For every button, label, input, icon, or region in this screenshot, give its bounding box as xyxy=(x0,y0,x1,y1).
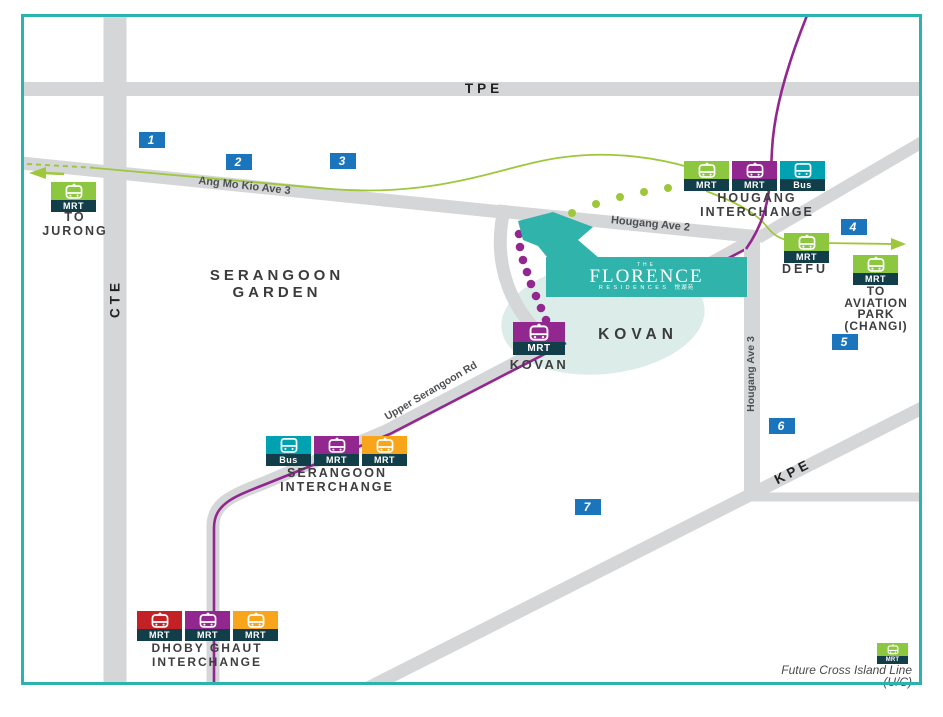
future-cil-line1: Future Cross Island Line xyxy=(710,665,912,677)
train-icon xyxy=(784,233,829,251)
roads xyxy=(21,14,925,689)
train-icon xyxy=(853,255,898,273)
marker-7: 7 xyxy=(575,499,601,515)
train-icon xyxy=(362,436,407,454)
mrt-icon-green-future-cil: MRT xyxy=(877,643,908,664)
bus-icon-teal-serangoon: Bus xyxy=(266,436,311,466)
dhoby-line1: DHOBY GHAUT xyxy=(122,642,292,656)
serangoon-line1: SERANGOON xyxy=(252,467,422,481)
logo-name: FLORENCE xyxy=(589,268,703,285)
hougang-line2: INTERCHANGE xyxy=(672,206,842,220)
logo-chinese-text: 悦湖苑 xyxy=(675,285,695,291)
mrt-badge: MRT xyxy=(784,251,829,263)
mrt-badge: MRT xyxy=(877,656,908,664)
mrt-badge: MRT xyxy=(362,454,407,466)
train-icon xyxy=(185,611,230,629)
future-cil-line2: (U/C) xyxy=(710,677,912,689)
mrt-icon-green-hougang: MRT xyxy=(684,161,729,191)
map-canvas xyxy=(0,0,943,717)
bus-icon-teal-hougang: Bus xyxy=(780,161,825,191)
train-icon xyxy=(684,161,729,179)
tpe-label: TPE xyxy=(452,81,516,96)
station-hougang-interchange-label: HOUGANG INTERCHANGE xyxy=(672,192,842,219)
mrt-icon-purple-dhoby: MRT xyxy=(185,611,230,641)
marker-3: 3 xyxy=(330,153,356,169)
marker-4: 4 xyxy=(841,219,867,235)
walk-path-to-hougang xyxy=(568,184,672,217)
mrt-badge: MRT xyxy=(314,454,359,466)
jurong-line2: JURONG xyxy=(25,225,125,239)
mrt-icon-red-dhoby: MRT xyxy=(137,611,182,641)
station-to-jurong-label: TO JURONG xyxy=(25,211,125,238)
mrt-badge: MRT xyxy=(233,629,278,641)
mrt-icon-green-defu: MRT xyxy=(784,233,829,263)
hougang-line1: HOUGANG xyxy=(672,192,842,206)
mrt-icon-orange-serangoon: MRT xyxy=(362,436,407,466)
mrt-badge: MRT xyxy=(732,179,777,191)
station-dhoby-ghaut-interchange-label: DHOBY GHAUT INTERCHANGE xyxy=(122,642,292,669)
florence-residences-logo: THE FLORENCE RESIDENCES 悦湖苑 xyxy=(546,257,747,297)
serangoon-garden-line1: SERANGOON xyxy=(172,267,382,284)
train-icon xyxy=(51,182,96,200)
road-kpe xyxy=(366,407,924,689)
mrt-icon-orange-dhoby: MRT xyxy=(233,611,278,641)
florence-residences-location-map: TPE CTE KPE Ang Mo Kio Ave 3 Hougang Ave… xyxy=(0,0,943,717)
mrt-badge: MRT xyxy=(137,629,182,641)
train-icon xyxy=(314,436,359,454)
arrow-to-changi xyxy=(891,238,906,250)
train-icon xyxy=(877,643,908,656)
station-defu-label: DEFU xyxy=(755,263,855,277)
north-east-line xyxy=(214,13,808,689)
future-cross-island-line-label: Future Cross Island Line (U/C) xyxy=(710,665,912,688)
hougang-ave-3-label: Hougang Ave 3 xyxy=(745,330,757,418)
marker-1: 1 xyxy=(139,132,165,148)
station-serangoon-interchange-label: SERANGOON INTERCHANGE xyxy=(252,467,422,494)
marker-6: 6 xyxy=(769,418,795,434)
bus-icon xyxy=(266,436,311,454)
serangoon-garden-label: SERANGOON GARDEN xyxy=(172,267,382,301)
marker-5: 5 xyxy=(832,334,858,350)
logo-residences: RESIDENCES 悦湖苑 xyxy=(599,285,694,292)
mrt-icon-purple-hougang: MRT xyxy=(732,161,777,191)
dhoby-line2: INTERCHANGE xyxy=(122,656,292,670)
serangoon-garden-line2: GARDEN xyxy=(172,284,382,301)
mrt-badge: MRT xyxy=(853,273,898,285)
station-kovan-label: KOVAN xyxy=(489,358,589,372)
bus-badge: Bus xyxy=(780,179,825,191)
mrt-badge: MRT xyxy=(185,629,230,641)
mrt-badge: MRT xyxy=(513,342,565,355)
mrt-badge: MRT xyxy=(684,179,729,191)
marker-2: 2 xyxy=(226,154,252,170)
mrt-icon-purple-serangoon: MRT xyxy=(314,436,359,466)
train-icon xyxy=(233,611,278,629)
mrt-badge: MRT xyxy=(51,200,96,212)
jurong-line1: TO xyxy=(25,211,125,225)
bus-icon xyxy=(780,161,825,179)
aviation-line4: (CHANGI) xyxy=(826,321,926,333)
logo-residences-text: RESIDENCES xyxy=(599,285,670,291)
serangoon-line2: INTERCHANGE xyxy=(252,481,422,495)
mrt-icon-green-jurong: MRT xyxy=(51,182,96,212)
bus-badge: Bus xyxy=(266,454,311,466)
kovan-area-label: KOVAN xyxy=(577,326,699,343)
train-icon xyxy=(732,161,777,179)
mrt-icon-purple-kovan: MRT xyxy=(513,322,565,355)
train-icon xyxy=(137,611,182,629)
cte-label: CTE xyxy=(108,275,123,323)
train-icon xyxy=(513,322,565,342)
station-to-aviation-park-label: TO AVIATION PARK (CHANGI) xyxy=(826,286,926,332)
mrt-icon-green-aviation: MRT xyxy=(853,255,898,285)
